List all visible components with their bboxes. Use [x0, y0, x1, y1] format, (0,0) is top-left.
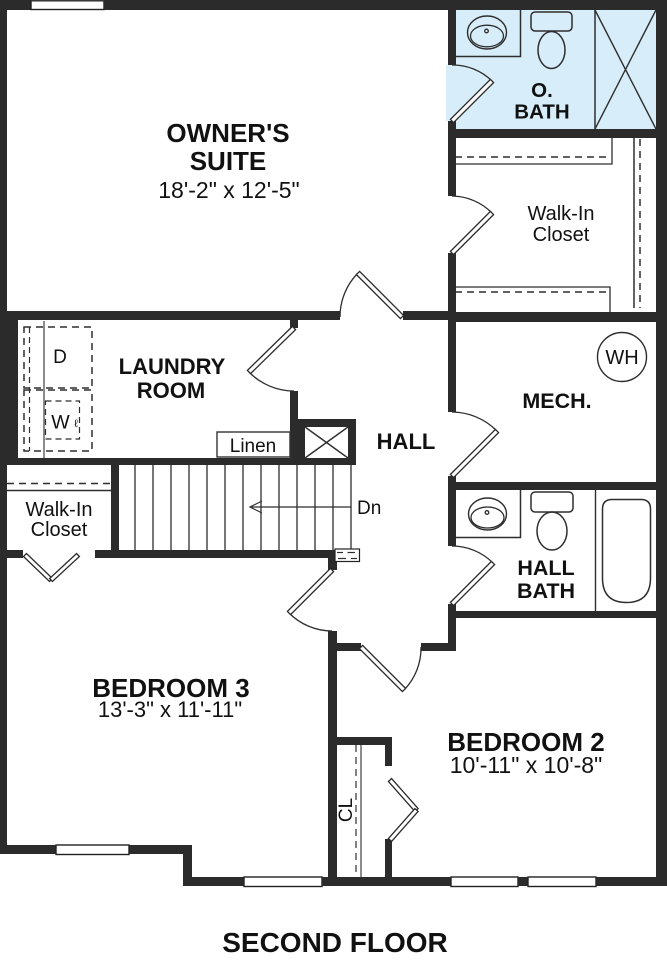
svg-text:HALL: HALL: [377, 429, 436, 454]
svg-text:Walk-In: Walk-In: [25, 499, 92, 521]
svg-text:ROOM: ROOM: [137, 378, 205, 403]
svg-text:Walk-In: Walk-In: [527, 203, 594, 225]
svg-text:CL: CL: [336, 798, 357, 822]
svg-text:BATH: BATH: [517, 579, 575, 603]
svg-text:Closet: Closet: [533, 224, 590, 246]
svg-text:10'-11" x 10'-8": 10'-11" x 10'-8": [450, 752, 603, 778]
svg-text:13'-3" x 11'-11": 13'-3" x 11'-11": [98, 697, 242, 722]
svg-text:OWNER'S: OWNER'S: [166, 118, 289, 148]
svg-text:BATH: BATH: [514, 101, 569, 124]
svg-text:D: D: [53, 347, 67, 368]
svg-text:Closet: Closet: [31, 519, 88, 541]
svg-text:WH: WH: [605, 347, 638, 369]
svg-text:SECOND FLOOR: SECOND FLOOR: [222, 927, 448, 958]
svg-text:SUITE: SUITE: [190, 146, 267, 176]
svg-text:Dn: Dn: [357, 498, 381, 519]
svg-text:18'-2" x 12'-5": 18'-2" x 12'-5": [158, 177, 299, 203]
svg-text:ℓ: ℓ: [74, 418, 78, 430]
svg-text:LAUNDRY: LAUNDRY: [119, 354, 226, 379]
svg-text:W: W: [51, 412, 70, 434]
svg-text:O.: O.: [531, 79, 553, 102]
svg-text:MECH.: MECH.: [522, 389, 591, 413]
svg-text:HALL: HALL: [517, 556, 574, 580]
svg-text:Linen: Linen: [230, 436, 277, 457]
